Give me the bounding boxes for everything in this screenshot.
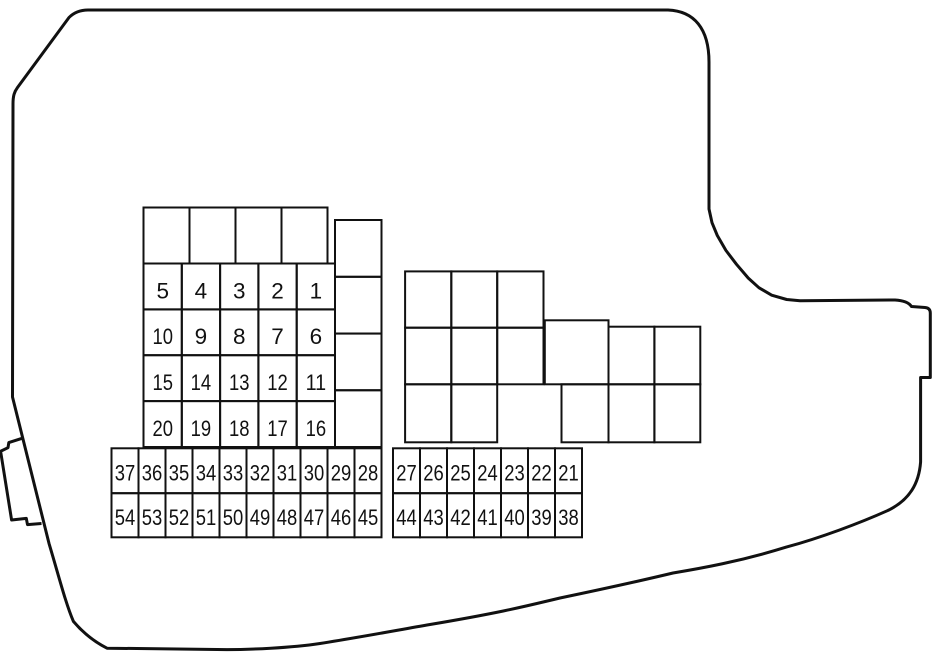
svg-text:15: 15 <box>152 370 173 395</box>
svg-text:19: 19 <box>191 416 212 441</box>
svg-text:30: 30 <box>304 460 325 485</box>
svg-text:52: 52 <box>169 505 190 530</box>
svg-text:43: 43 <box>423 505 444 530</box>
svg-text:47: 47 <box>304 505 325 530</box>
svg-text:28: 28 <box>358 460 379 485</box>
svg-text:3: 3 <box>233 278 246 303</box>
svg-text:49: 49 <box>250 505 271 530</box>
svg-text:16: 16 <box>306 416 327 441</box>
svg-text:36: 36 <box>142 460 163 485</box>
svg-text:34: 34 <box>196 460 217 485</box>
svg-text:50: 50 <box>223 505 244 530</box>
svg-text:45: 45 <box>358 505 379 530</box>
svg-text:21: 21 <box>558 460 579 485</box>
svg-text:26: 26 <box>423 460 444 485</box>
svg-text:11: 11 <box>306 370 327 395</box>
svg-text:51: 51 <box>196 505 217 530</box>
svg-text:6: 6 <box>310 324 323 349</box>
svg-text:29: 29 <box>331 460 352 485</box>
svg-text:44: 44 <box>396 505 417 530</box>
svg-text:10: 10 <box>152 324 173 349</box>
svg-text:25: 25 <box>450 460 471 485</box>
svg-text:39: 39 <box>531 505 552 530</box>
svg-text:46: 46 <box>331 505 352 530</box>
svg-text:27: 27 <box>396 460 417 485</box>
svg-text:40: 40 <box>504 505 525 530</box>
svg-text:48: 48 <box>277 505 298 530</box>
svg-text:53: 53 <box>142 505 163 530</box>
svg-text:22: 22 <box>531 460 552 485</box>
svg-text:31: 31 <box>277 460 298 485</box>
svg-text:17: 17 <box>267 416 288 441</box>
svg-text:32: 32 <box>250 460 271 485</box>
svg-text:5: 5 <box>156 278 169 303</box>
svg-text:9: 9 <box>195 324 208 349</box>
svg-text:23: 23 <box>504 460 525 485</box>
svg-text:12: 12 <box>267 370 288 395</box>
svg-text:1: 1 <box>310 278 323 303</box>
svg-text:24: 24 <box>477 460 498 485</box>
svg-text:54: 54 <box>115 505 136 530</box>
svg-text:2: 2 <box>271 278 284 303</box>
svg-text:14: 14 <box>191 370 212 395</box>
svg-text:33: 33 <box>223 460 244 485</box>
svg-text:38: 38 <box>558 505 579 530</box>
svg-text:7: 7 <box>271 324 284 349</box>
svg-text:42: 42 <box>450 505 471 530</box>
svg-text:37: 37 <box>115 460 136 485</box>
svg-text:13: 13 <box>229 370 250 395</box>
svg-text:20: 20 <box>152 416 173 441</box>
svg-text:8: 8 <box>233 324 246 349</box>
svg-text:18: 18 <box>229 416 250 441</box>
svg-text:35: 35 <box>169 460 190 485</box>
svg-text:41: 41 <box>477 505 498 530</box>
svg-text:4: 4 <box>195 278 208 303</box>
